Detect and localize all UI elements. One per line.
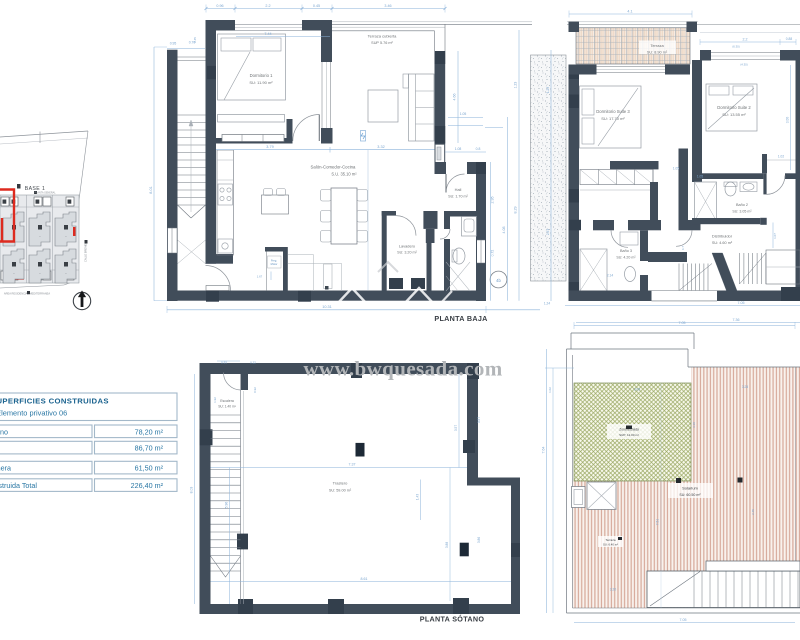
- svg-text:0.8: 0.8: [476, 147, 481, 151]
- svg-text:▪: ▪: [14, 272, 15, 275]
- svg-text:1.05: 1.05: [697, 175, 703, 179]
- svg-text:2.95: 2.95: [491, 197, 495, 204]
- svg-text:10.31: 10.31: [322, 305, 332, 309]
- svg-text:e Elemento privativo 06: e Elemento privativo 06: [0, 409, 67, 418]
- svg-text:SU: 59.00 m²: SU: 59.00 m²: [329, 489, 352, 493]
- svg-text:0.72: 0.72: [491, 250, 495, 257]
- svg-text:SU: 60.50 m²: SU: 60.50 m²: [679, 493, 701, 497]
- svg-text:Terraza cubierta: Terraza cubierta: [368, 34, 397, 39]
- svg-text:Distribuidor: Distribuidor: [712, 234, 733, 239]
- svg-text:Lavadero: Lavadero: [399, 244, 415, 249]
- svg-text:8.29: 8.29: [514, 207, 518, 214]
- svg-text:Terraza: Terraza: [650, 43, 664, 48]
- svg-text:2.91: 2.91: [546, 229, 550, 235]
- svg-text:2.14: 2.14: [607, 274, 613, 278]
- svg-text:PLANTA SÓTANO: PLANTA SÓTANO: [420, 615, 485, 624]
- svg-text:Hall: Hall: [455, 187, 462, 192]
- svg-text:1.05: 1.05: [460, 112, 467, 116]
- svg-text:Terraza: Terraza: [605, 538, 615, 542]
- svg-text:4.1: 4.1: [627, 10, 632, 14]
- svg-text:SU: 17.70 m²: SU: 17.70 m²: [601, 116, 625, 121]
- svg-text:8.01: 8.01: [149, 186, 153, 193]
- svg-text:Dormitorio 1: Dormitorio 1: [250, 73, 273, 78]
- svg-text:0.45: 0.45: [193, 37, 197, 43]
- svg-text:3.57: 3.57: [477, 417, 481, 423]
- svg-text:SU: 4.60 m²: SU: 4.60 m²: [712, 241, 733, 245]
- svg-text:S.U. 35.10 m²: S.U. 35.10 m²: [331, 172, 357, 177]
- svg-text:1.23: 1.23: [546, 87, 550, 93]
- svg-text:4b: 4b: [496, 278, 501, 283]
- svg-text:1.24: 1.24: [544, 302, 550, 306]
- svg-text:61,50 m²: 61,50 m²: [135, 464, 164, 473]
- svg-text:SU: 8.90 m²: SU: 8.90 m²: [647, 51, 668, 55]
- svg-text:5.96: 5.96: [225, 502, 229, 509]
- svg-text:▪: ▪: [66, 272, 67, 275]
- svg-text:3.32: 3.32: [377, 145, 384, 149]
- svg-text:3.18: 3.18: [692, 422, 696, 428]
- svg-text:Solarium: Solarium: [682, 486, 698, 491]
- svg-text:SU: 4.20 m²: SU: 4.20 m²: [616, 256, 636, 260]
- svg-text:3.79: 3.79: [266, 145, 273, 149]
- svg-text:(6.30): (6.30): [732, 45, 739, 49]
- svg-text:1.07: 1.07: [773, 233, 777, 239]
- svg-text:3.28: 3.28: [742, 385, 748, 389]
- svg-text:SU: 11.90 m²: SU: 11.90 m²: [249, 80, 273, 85]
- svg-text:7.36: 7.36: [733, 318, 740, 322]
- svg-text:2.2: 2.2: [743, 38, 748, 42]
- svg-text:7.05: 7.05: [680, 618, 687, 622]
- svg-text:SU: 13.55 m²: SU: 13.55 m²: [722, 112, 746, 117]
- svg-text:0.96: 0.96: [216, 4, 223, 8]
- svg-text:1.23: 1.23: [514, 82, 518, 89]
- svg-text:SU: 3.05 m²: SU: 3.05 m²: [732, 210, 752, 214]
- svg-text:Planta Primera: Planta Primera: [0, 464, 11, 473]
- svg-text:Superficie Construida Total: Superficie Construida Total: [0, 481, 37, 490]
- svg-text:0.95: 0.95: [170, 42, 177, 46]
- svg-text:2.45: 2.45: [751, 509, 755, 515]
- svg-text:PLANTA BAJA: PLANTA BAJA: [434, 314, 487, 323]
- svg-text:7.37: 7.37: [349, 463, 356, 467]
- svg-text:3.46: 3.46: [384, 4, 391, 8]
- svg-text:7.44: 7.44: [264, 32, 271, 36]
- svg-text:86,70 m²: 86,70 m²: [135, 444, 164, 453]
- svg-text:7.51: 7.51: [656, 519, 660, 526]
- svg-text:7.64: 7.64: [542, 447, 546, 454]
- svg-text:▪: ▪: [66, 235, 67, 238]
- svg-text:1.08: 1.08: [455, 147, 462, 151]
- svg-text:226,40 m²: 226,40 m²: [131, 481, 164, 490]
- svg-text:Motor: Motor: [271, 262, 278, 266]
- svg-text:0.22: 0.22: [250, 361, 256, 365]
- svg-text:3.08: 3.08: [634, 388, 640, 392]
- svg-text:0.88: 0.88: [786, 37, 793, 41]
- svg-text:SU: 6.40 m²: SU: 6.40 m²: [603, 543, 618, 547]
- svg-text:Baño 2: Baño 2: [736, 203, 748, 207]
- svg-text:Dormitorio Suite 2: Dormitorio Suite 2: [717, 105, 751, 110]
- svg-text:3.57: 3.57: [454, 425, 458, 431]
- svg-text:CALLE BREMEN: CALLE BREMEN: [84, 242, 88, 262]
- svg-text:SUPERFICIES CONSTRUIDAS: SUPERFICIES CONSTRUIDAS: [0, 397, 109, 406]
- svg-text:4.7: 4.7: [681, 246, 685, 251]
- svg-text:1.92: 1.92: [213, 397, 217, 403]
- svg-text:1.02: 1.02: [778, 155, 784, 159]
- svg-text:4.66: 4.66: [453, 94, 457, 101]
- svg-text:Baño 3: Baño 3: [620, 249, 632, 253]
- svg-text:2.2: 2.2: [265, 4, 270, 8]
- svg-text:8.61: 8.61: [361, 577, 368, 581]
- svg-text:Trastero: Trastero: [333, 481, 349, 486]
- svg-text:SUP: 12.00 m²: SUP: 12.00 m²: [619, 433, 639, 437]
- svg-text:3.00: 3.00: [786, 117, 790, 124]
- svg-text:7.05: 7.05: [679, 321, 686, 325]
- svg-text:0.45: 0.45: [313, 4, 320, 8]
- svg-text:Freg.: Freg.: [271, 259, 277, 263]
- svg-text:SU: 3.20 m²: SU: 3.20 m²: [397, 251, 417, 255]
- svg-text:1.67: 1.67: [257, 275, 263, 279]
- svg-text:▪: ▪: [40, 235, 41, 238]
- svg-text:8.03: 8.03: [190, 487, 194, 494]
- svg-text:Dormitorio Suite 3: Dormitorio Suite 3: [596, 109, 630, 114]
- svg-text:1.05: 1.05: [673, 167, 679, 171]
- svg-text:0.92: 0.92: [253, 387, 257, 393]
- svg-text:▪: ▪: [40, 272, 41, 275]
- svg-text:PLANTA GENERAL: PLANTA GENERAL: [34, 192, 56, 195]
- svg-text:Escalera: Escalera: [220, 399, 234, 403]
- svg-text:Planta Sótano: Planta Sótano: [0, 427, 8, 436]
- svg-text:1.43: 1.43: [416, 494, 420, 500]
- svg-text:www.bwquesada.com: www.bwquesada.com: [303, 357, 502, 381]
- svg-text:SU: 1.70 m²: SU: 1.70 m²: [448, 195, 468, 199]
- svg-text:3.20: 3.20: [610, 588, 617, 592]
- svg-text:78,20 m²: 78,20 m²: [135, 427, 164, 436]
- svg-text:SU: 1.40 m²: SU: 1.40 m²: [218, 405, 236, 409]
- svg-text:3.88: 3.88: [445, 542, 449, 548]
- svg-text:4.08: 4.08: [502, 227, 506, 234]
- svg-text:Salón-Comedor-Cocina: Salón-Comedor-Cocina: [311, 165, 357, 170]
- svg-text:(4.30): (4.30): [740, 63, 747, 67]
- svg-text:SUP 5.76 m²: SUP 5.76 m²: [371, 41, 393, 45]
- svg-text:1.02: 1.02: [548, 387, 552, 393]
- svg-text:7.05: 7.05: [738, 301, 745, 305]
- svg-text:3.86: 3.86: [477, 537, 481, 543]
